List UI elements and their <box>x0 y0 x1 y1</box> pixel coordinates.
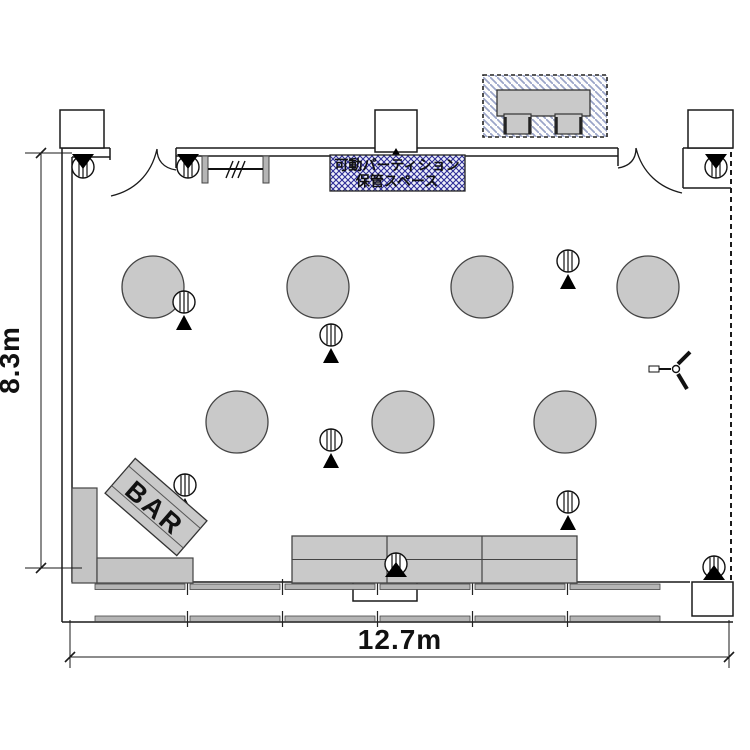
stand-marker <box>705 154 727 178</box>
round-table <box>206 391 268 453</box>
dimension-height-label: 8.3m <box>0 326 25 394</box>
bar-counter: BAR <box>105 458 207 555</box>
partition-storage-label: 可動パーティション 保管スペース <box>330 148 465 191</box>
partition-storage-text-line2: 保管スペース <box>355 173 438 189</box>
coat-rack-post <box>202 156 208 183</box>
partition-panel <box>190 616 280 622</box>
wall-left <box>62 148 72 622</box>
partition-panel-strips <box>95 579 660 627</box>
bar-back-counter <box>97 558 193 583</box>
pillar-left <box>60 110 104 148</box>
coat-rack-post <box>263 156 269 183</box>
stand-marker <box>557 491 579 530</box>
partition-panel <box>190 584 280 590</box>
stand-marker <box>173 291 195 330</box>
stand-marker-triangle-icon <box>560 274 576 289</box>
reception-desk <box>497 90 590 116</box>
stand-marker <box>320 429 342 468</box>
pillar-right <box>688 110 733 148</box>
partition-panel <box>95 616 185 622</box>
dimension-height: 8.3m <box>0 148 82 573</box>
stand-marker-triangle-icon <box>323 453 339 468</box>
partition-panel <box>285 584 375 590</box>
stand-marker-triangle-icon <box>176 315 192 330</box>
dimension-width: 12.7m <box>65 620 734 668</box>
partition-panel <box>570 584 660 590</box>
tripod-symbol-handle <box>649 366 659 372</box>
dimension-width-label: 12.7m <box>358 624 442 655</box>
partition-panel <box>285 616 375 622</box>
tripod-symbol-hub <box>673 366 680 373</box>
door-right-swing <box>618 148 682 193</box>
round-table <box>287 256 349 318</box>
wall-bottom-right-block <box>692 582 733 616</box>
stand-marker <box>703 556 725 580</box>
tripod-symbol-blade <box>678 352 690 364</box>
partition-panel <box>95 584 185 590</box>
stand-marker-triangle-icon <box>323 348 339 363</box>
partition-panel <box>570 616 660 622</box>
tripod-symbol-blade <box>678 374 687 389</box>
partition-panel <box>380 584 470 590</box>
stand-marker <box>557 250 579 289</box>
round-table <box>617 256 679 318</box>
round-table <box>534 391 596 453</box>
bar-back-counter <box>72 488 97 583</box>
partition-panel <box>380 616 470 622</box>
stand-marker-triangle-icon <box>560 515 576 530</box>
stand-marker <box>385 553 407 577</box>
pillar-center <box>375 110 417 152</box>
partition-storage-text-line1: 可動パーティション <box>334 157 459 173</box>
floorplan-svg: 可動パーティション 保管スペース BAR 8.3m 12.7m <box>0 0 750 750</box>
round-table <box>372 391 434 453</box>
partition-panel <box>475 584 565 590</box>
reception-chair <box>504 114 531 134</box>
round-table <box>451 256 513 318</box>
door-left-swing <box>111 149 176 196</box>
partition-panel <box>475 616 565 622</box>
stand-marker <box>320 324 342 363</box>
reception-chair <box>555 114 582 134</box>
floorplan-canvas: 可動パーティション 保管スペース BAR 8.3m 12.7m <box>0 0 750 750</box>
stand-marker <box>72 154 94 178</box>
stand-marker <box>177 154 199 178</box>
